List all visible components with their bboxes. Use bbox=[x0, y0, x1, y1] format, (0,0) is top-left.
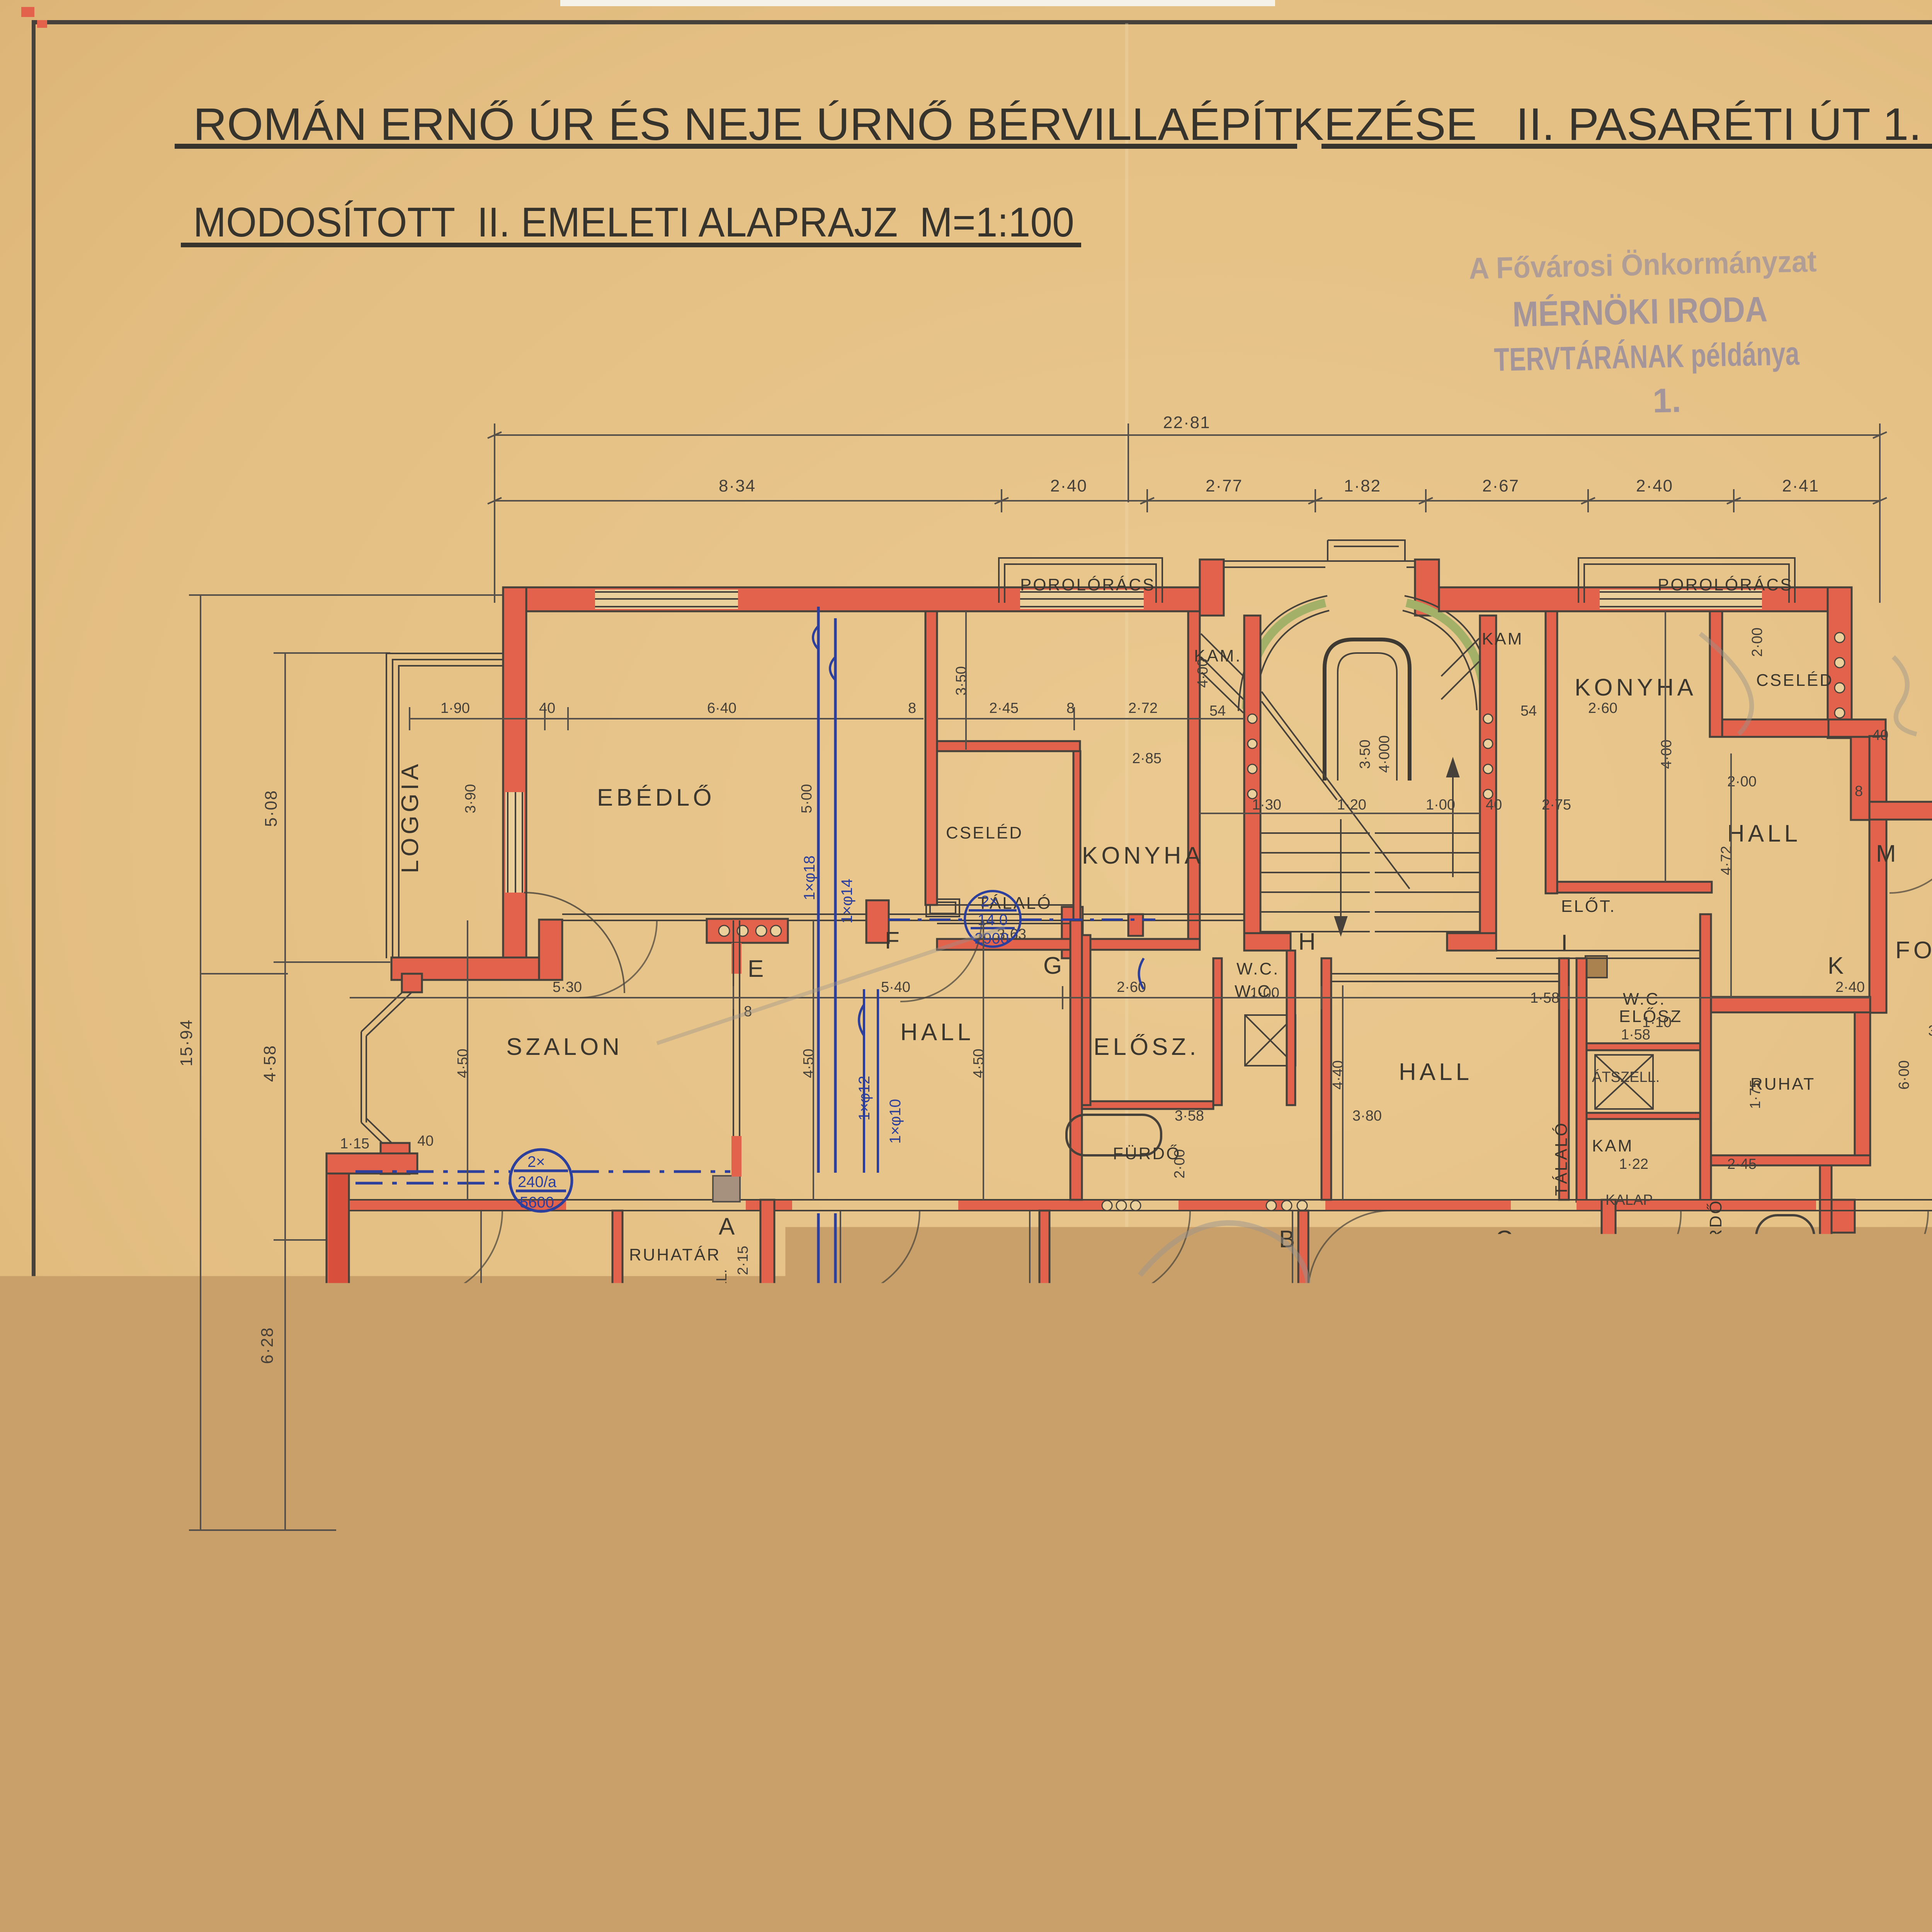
svg-text:34·04: 34·04 bbox=[1376, 1708, 1423, 1727]
svg-text:NÉMETH JÁNOS: NÉMETH JÁNOS bbox=[859, 1867, 1105, 1903]
svg-text:SZALON: SZALON bbox=[506, 1034, 623, 1060]
svg-text:1·00: 1·00 bbox=[1426, 797, 1455, 813]
svg-text:18: 18 bbox=[723, 1504, 740, 1520]
svg-text:2·85: 2·85 bbox=[1132, 750, 1162, 767]
svg-text:1×φ20: 1×φ20 bbox=[801, 1385, 818, 1430]
svg-text:ERKÉLY: ERKÉLY bbox=[1401, 1643, 1514, 1670]
svg-text:A: A bbox=[719, 1213, 738, 1240]
svg-text:4·00: 4·00 bbox=[1711, 1439, 1727, 1468]
svg-text:W.C.: W.C. bbox=[1623, 990, 1666, 1009]
svg-text:54: 54 bbox=[1209, 703, 1226, 719]
svg-text:3·80: 3·80 bbox=[1352, 1108, 1382, 1124]
svg-text:1·75: 1·75 bbox=[1747, 1080, 1764, 1109]
svg-text:1×φ10: 1×φ10 bbox=[887, 1099, 904, 1144]
svg-text:15: 15 bbox=[1785, 1414, 1801, 1430]
svg-text:H: H bbox=[1298, 929, 1319, 955]
svg-text:TÁLALÓ: TÁLALÓ bbox=[1552, 1121, 1571, 1196]
svg-text:4·22: 4·22 bbox=[425, 1639, 462, 1658]
svg-text:G: G bbox=[1043, 952, 1065, 979]
svg-text:5·30: 5·30 bbox=[553, 979, 582, 995]
svg-text:HÁLÓ: HÁLÓ bbox=[881, 1289, 960, 1316]
svg-text:2·67: 2·67 bbox=[1482, 476, 1519, 495]
svg-text:5·00: 5·00 bbox=[799, 784, 815, 813]
svg-text:4·00: 4·00 bbox=[1074, 1376, 1104, 1392]
svg-text:HŐSZIG: HŐSZIG bbox=[659, 1478, 715, 1494]
svg-text:HÁLÓ: HÁLÓ bbox=[485, 1289, 564, 1316]
svg-text:MÉRNÖKI IRODA: MÉRNÖKI IRODA bbox=[1512, 289, 1768, 334]
svg-text:2·40: 2·40 bbox=[1050, 476, 1087, 495]
svg-text:C.: C. bbox=[1495, 1226, 1526, 1253]
svg-text:EBÉDLŐ: EBÉDLŐ bbox=[597, 784, 715, 811]
svg-text:8: 8 bbox=[1066, 700, 1075, 716]
svg-text:5·08: 5·08 bbox=[262, 790, 281, 827]
svg-text:3·50: 3·50 bbox=[953, 666, 969, 696]
svg-text:1×φ12: 1×φ12 bbox=[856, 1076, 873, 1121]
svg-text:RUHATÁR: RUHATÁR bbox=[629, 1245, 721, 1264]
svg-text:4·50: 4·50 bbox=[801, 1049, 817, 1078]
svg-text:3·58: 3·58 bbox=[1175, 1108, 1204, 1124]
svg-text:1.: 1. bbox=[1652, 381, 1681, 420]
svg-text:55: 55 bbox=[891, 1564, 908, 1580]
svg-text:5600: 5600 bbox=[520, 1194, 554, 1211]
svg-text:1·82: 1·82 bbox=[1344, 476, 1381, 495]
svg-text:3·90: 3·90 bbox=[463, 784, 479, 813]
svg-text:2·72: 2·72 bbox=[1128, 700, 1158, 716]
svg-text:2·45: 2·45 bbox=[989, 700, 1019, 716]
svg-text:2×: 2× bbox=[527, 1153, 545, 1170]
svg-text:CSELÉD: CSELÉD bbox=[1756, 671, 1833, 690]
svg-text:4·00: 4·00 bbox=[889, 1376, 918, 1392]
svg-text:2·40: 2·40 bbox=[1747, 1316, 1776, 1333]
svg-text:KAM: KAM bbox=[1592, 1136, 1633, 1155]
svg-text:3·00: 3·00 bbox=[614, 1568, 644, 1584]
svg-text:F: F bbox=[885, 927, 903, 954]
svg-text:240/a: 240/a bbox=[518, 1173, 557, 1190]
svg-text:7·95: 7·95 bbox=[904, 1639, 941, 1658]
svg-text:40: 40 bbox=[810, 1566, 827, 1582]
svg-text:2·15: 2·15 bbox=[735, 1246, 751, 1275]
svg-text:3·00: 3·00 bbox=[1391, 1606, 1420, 1622]
svg-text:ROMÁN ERNŐ ÚR ÉS NEJE ÚRNŐ BÉR: ROMÁN ERNŐ ÚR ÉS NEJE ÚRNŐ BÉRVILLAÉPÍTK… bbox=[193, 99, 1932, 150]
svg-text:2·45: 2·45 bbox=[1727, 1156, 1757, 1172]
svg-text:HALL: HALL bbox=[1399, 1059, 1473, 1085]
svg-text:8: 8 bbox=[1855, 783, 1863, 799]
svg-text:15·94: 15·94 bbox=[177, 1019, 196, 1066]
svg-text:HÁLÓ: HÁLÓ bbox=[1836, 1327, 1915, 1354]
svg-text:FÜRDŐ: FÜRDŐ bbox=[1706, 1199, 1725, 1267]
svg-text:8·19: 8·19 bbox=[1762, 1677, 1799, 1696]
svg-text:2·60: 2·60 bbox=[1588, 700, 1617, 716]
svg-text:54: 54 bbox=[1520, 703, 1537, 719]
svg-text:1·60: 1·60 bbox=[1719, 1414, 1749, 1430]
svg-text:5·48: 5·48 bbox=[464, 1335, 481, 1364]
svg-text:2·40: 2·40 bbox=[1636, 476, 1673, 495]
svg-text:1·10: 1·10 bbox=[1642, 1014, 1672, 1031]
svg-text:POROLÓRÁCS: POROLÓRÁCS bbox=[1020, 575, 1156, 594]
svg-text:1·40: 1·40 bbox=[1338, 1617, 1354, 1646]
svg-text:27: 27 bbox=[1315, 1601, 1331, 1617]
svg-text:6·28: 6·28 bbox=[258, 1327, 277, 1364]
svg-text:40: 40 bbox=[378, 1566, 394, 1582]
svg-text:2·40: 2·40 bbox=[1835, 979, 1865, 995]
svg-text:FÜRDŐ: FÜRDŐ bbox=[1113, 1144, 1181, 1163]
svg-text:4·40: 4·40 bbox=[1330, 1060, 1346, 1090]
svg-text:40: 40 bbox=[1486, 797, 1502, 813]
svg-text:ÁTSZELL.: ÁTSZELL. bbox=[713, 1269, 730, 1337]
svg-text:FOGADÓSZ.: FOGADÓSZ. bbox=[1895, 937, 1932, 964]
svg-text:2×: 2× bbox=[981, 893, 998, 910]
svg-text:4·00: 4·00 bbox=[1195, 658, 1211, 688]
svg-text:D.: D. bbox=[1861, 1236, 1891, 1263]
svg-text:40: 40 bbox=[1872, 727, 1888, 743]
svg-text:5·15: 5·15 bbox=[1017, 1331, 1033, 1360]
svg-text:POROLÓRÁCS: POROLÓRÁCS bbox=[1658, 575, 1793, 594]
svg-text:MODOSÍTOTT II. EMELETI ALAPRA: MODOSÍTOTT II. EMELETI ALAPRAJZ M=1:100 bbox=[193, 199, 1074, 245]
svg-text:L.: L. bbox=[1005, 1546, 1032, 1572]
svg-text:4·000: 4·000 bbox=[1376, 735, 1393, 773]
svg-text:40: 40 bbox=[539, 700, 555, 716]
svg-text:6·00: 6·00 bbox=[1896, 1060, 1912, 1090]
svg-text:K: K bbox=[1828, 952, 1847, 979]
svg-text:KALAP: KALAP bbox=[1605, 1192, 1653, 1208]
svg-text:1·58: 1·58 bbox=[1530, 990, 1560, 1006]
svg-text:1·15: 1·15 bbox=[340, 1136, 369, 1152]
svg-text:5·40: 5·40 bbox=[881, 979, 910, 995]
svg-text:I: I bbox=[1561, 930, 1571, 957]
svg-text:4·00: 4·00 bbox=[1658, 740, 1675, 769]
svg-text:W.C.: W.C. bbox=[1236, 959, 1279, 978]
svg-text:2·00: 2·00 bbox=[1749, 628, 1765, 657]
svg-text:2·77: 2·77 bbox=[1206, 476, 1243, 495]
svg-text:4·58: 4·58 bbox=[260, 1045, 279, 1082]
svg-text:2·75: 2·75 bbox=[1542, 797, 1571, 813]
svg-text:ÁTSZELL.: ÁTSZELL. bbox=[1592, 1069, 1660, 1085]
svg-text:KONYHA: KONYHA bbox=[1082, 842, 1204, 869]
svg-text:CSELÉD: CSELÉD bbox=[946, 823, 1023, 842]
svg-text:4·40: 4·40 bbox=[475, 1376, 505, 1392]
svg-text:A Fővárosi Önkormányzat: A Fővárosi Önkormányzat bbox=[1469, 244, 1817, 286]
svg-text:22·81: 22·81 bbox=[1163, 413, 1211, 432]
svg-text:HALL: HALL bbox=[1727, 820, 1801, 847]
svg-text:KONYHA: KONYHA bbox=[1575, 674, 1697, 701]
svg-text:ERKÉLY: ERKÉLY bbox=[587, 1624, 701, 1651]
svg-text:40: 40 bbox=[367, 1394, 383, 1410]
svg-text:4·50: 4·50 bbox=[455, 1049, 471, 1078]
svg-text:M: M bbox=[1876, 840, 1900, 867]
svg-text:28: 28 bbox=[1307, 1560, 1323, 1577]
svg-text:CSELÉD: CSELÉD bbox=[1700, 1341, 1777, 1360]
svg-text:8: 8 bbox=[908, 700, 916, 716]
svg-text:3·60: 3·60 bbox=[1866, 1414, 1896, 1430]
svg-text:EBÉDLŐ: EBÉDLŐ bbox=[1339, 1291, 1457, 1317]
svg-text:6·40: 6·40 bbox=[707, 700, 736, 716]
svg-text:4·72: 4·72 bbox=[1718, 846, 1735, 875]
svg-text:1·22: 1·22 bbox=[1619, 1156, 1648, 1172]
svg-text:KONYHA: KONYHA bbox=[1577, 1335, 1699, 1362]
svg-text:ELŐSZ.: ELŐSZ. bbox=[1094, 1034, 1200, 1060]
svg-text:2·41: 2·41 bbox=[1782, 476, 1819, 495]
svg-text:KAM: KAM bbox=[1482, 629, 1523, 648]
svg-text:1×φ18: 1×φ18 bbox=[801, 855, 818, 900]
svg-text:3·30: 3·30 bbox=[1638, 1394, 1668, 1410]
svg-text:4·80: 4·80 bbox=[1422, 1376, 1451, 1392]
svg-text:HALL: HALL bbox=[900, 1019, 974, 1046]
svg-text:1·30: 1·30 bbox=[1252, 797, 1281, 813]
svg-text:4·50: 4·50 bbox=[971, 1049, 987, 1078]
svg-text:2·00: 2·00 bbox=[1172, 1149, 1188, 1179]
svg-text:FÜRDŐ: FÜRDŐ bbox=[632, 1343, 700, 1362]
svg-text:40: 40 bbox=[417, 1133, 434, 1149]
svg-text:1×φ14: 1×φ14 bbox=[838, 879, 855, 923]
svg-text:LOGGIA: LOGGIA bbox=[397, 760, 423, 873]
svg-text:E: E bbox=[748, 956, 767, 982]
svg-text:1·20: 1·20 bbox=[1337, 797, 1366, 813]
svg-text:1·00: 1·00 bbox=[1250, 985, 1279, 1001]
svg-text:3·50: 3·50 bbox=[1357, 740, 1373, 769]
svg-text:1·90: 1·90 bbox=[440, 700, 470, 716]
svg-text:3·80: 3·80 bbox=[1928, 1023, 1932, 1039]
svg-text:8·34: 8·34 bbox=[719, 476, 756, 495]
svg-text:ELŐT.: ELŐT. bbox=[1561, 897, 1616, 916]
svg-text:2·20: 2·20 bbox=[544, 1570, 560, 1600]
svg-text:TERVTÁRÁNAK példánya: TERVTÁRÁNAK példánya bbox=[1494, 335, 1800, 378]
svg-text:2·25: 2·25 bbox=[665, 1362, 682, 1391]
svg-text:15: 15 bbox=[361, 1282, 378, 1298]
